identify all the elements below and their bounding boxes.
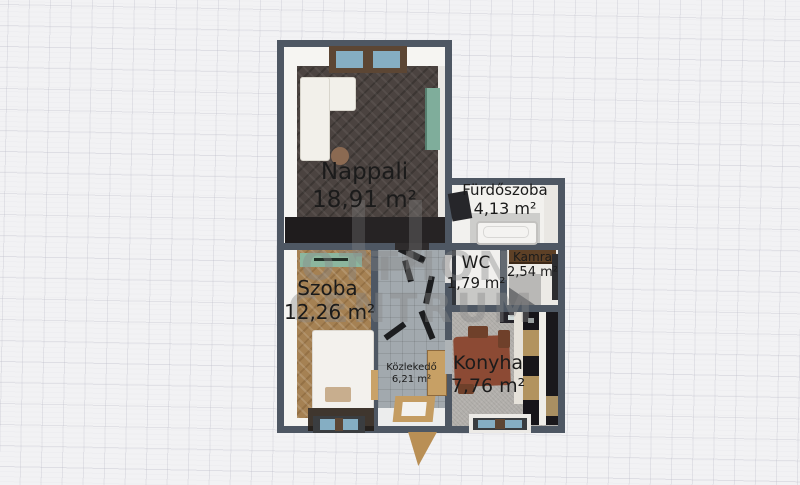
sofa-chaise-icon [300,77,330,161]
floorplan-screenshot: Nappali 18,91 m² Szoba 12,26 m² [0,0,800,485]
room-szoba: Szoba 12,26 m² [284,250,371,426]
room-label-szoba: Szoba 12,26 m² [284,276,371,325]
room-name: Közlekedő [378,362,445,374]
entrance-door-leaf-icon [403,432,437,466]
room-label-kozlekedo: Közlekedő 6,21 m² [378,362,445,386]
room-area: 6,21 m² [378,374,445,386]
room-label-furdoszoba: Fürdőszoba 4,13 m² [452,181,558,219]
room-area: 18,91 m² [284,186,445,214]
room-area: 12,26 m² [284,300,371,324]
doorway-szoba [371,370,378,400]
room-area: 4,13 m² [452,199,558,219]
pillow-icon [325,387,351,402]
cabinet-icon [425,88,440,150]
kitchen-cabinet-gap [539,312,546,425]
window-icon [469,414,531,433]
kitchen-fridge-icon [546,312,558,425]
room-name: Fürdőszoba [452,181,558,199]
room-label-kamra: Kamra 2,54 m² [507,250,558,280]
chair-icon [498,330,510,348]
room-label-konyha: Konyha 7,76 m² [446,352,530,398]
bed-icon [312,330,374,414]
room-label-wc: WC 1,79 m² [446,253,506,292]
room-area: 1,79 m² [446,274,506,292]
room-name: Nappali [284,158,445,186]
room-nappali: Nappali 18,91 m² [284,47,445,243]
room-label-nappali: Nappali 18,91 m² [284,158,445,214]
window-icon [329,46,407,73]
bathtub-icon [476,221,538,245]
room-name: Konyha [446,352,530,375]
room-name: Kamra [507,250,558,265]
entrance-door-frame-icon [393,396,436,422]
room-name: Szoba [284,276,371,300]
window-icon [313,416,365,433]
room-area: 7,76 m² [446,375,530,398]
room-furdoszoba: Fürdőszoba 4,13 m² [452,185,558,243]
room-name: WC [446,253,506,274]
room-area: 2,54 m² [507,265,558,281]
